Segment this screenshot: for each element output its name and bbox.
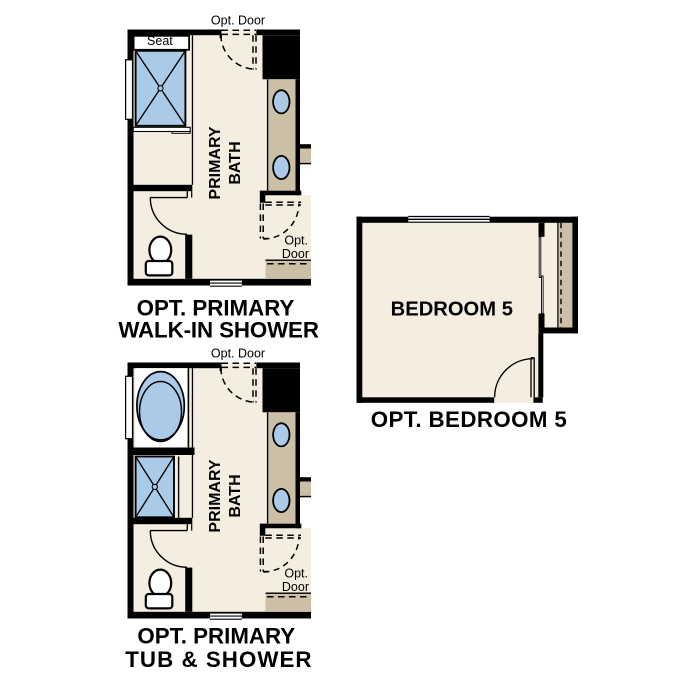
svg-text:OPT. BEDROOM 5: OPT. BEDROOM 5 (371, 407, 567, 432)
svg-text:BATH: BATH (227, 474, 244, 517)
svg-text:Door: Door (282, 247, 309, 261)
svg-text:Opt.: Opt. (284, 566, 308, 580)
svg-text:Opt. Door: Opt. Door (211, 14, 265, 28)
svg-text:BATH: BATH (227, 141, 244, 184)
svg-text:WALK-IN SHOWER: WALK-IN SHOWER (118, 317, 319, 342)
svg-text:PRIMARY: PRIMARY (207, 459, 224, 533)
svg-text:BEDROOM 5: BEDROOM 5 (391, 299, 513, 321)
svg-text:Opt. Door: Opt. Door (211, 347, 265, 361)
svg-text:Opt.: Opt. (284, 233, 308, 247)
svg-text:Door: Door (282, 580, 309, 594)
svg-text:PRIMARY: PRIMARY (207, 126, 224, 200)
svg-text:TUB & SHOWER: TUB & SHOWER (125, 647, 312, 672)
svg-text:Seat: Seat (147, 34, 173, 48)
svg-text:OPT. PRIMARY: OPT. PRIMARY (137, 624, 295, 649)
